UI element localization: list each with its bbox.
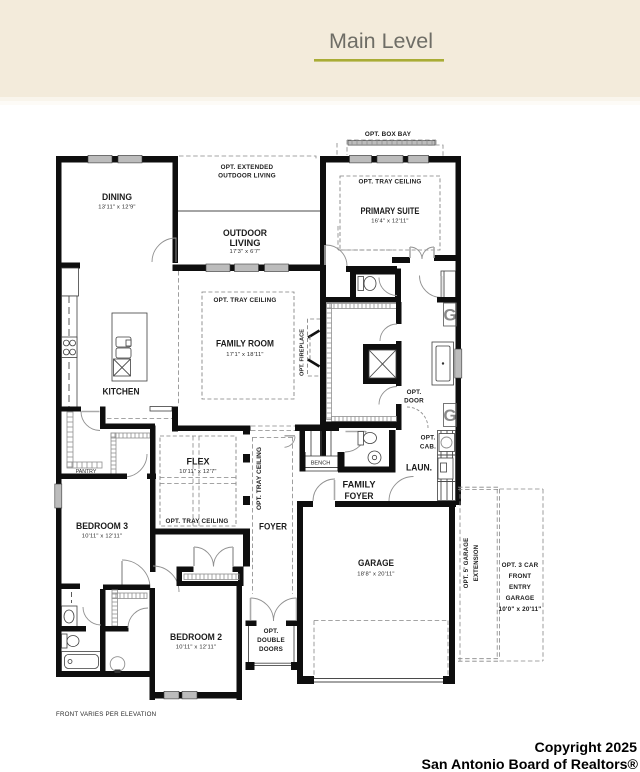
svg-text:OPT. TRAY CEILING: OPT. TRAY CEILING (359, 179, 422, 186)
svg-text:FAMILY ROOM: FAMILY ROOM (216, 339, 274, 350)
svg-text:EXTENSION: EXTENSION (474, 545, 480, 581)
svg-text:San Antonio Board of Realtors®: San Antonio Board of Realtors® (422, 757, 639, 772)
svg-text:OPT. FIREPLACE: OPT. FIREPLACE (300, 329, 306, 376)
svg-text:BEDROOM 2: BEDROOM 2 (170, 632, 222, 643)
svg-text:OPT. TRAY CEILING: OPT. TRAY CEILING (256, 447, 263, 510)
svg-text:OPT. BOX BAY: OPT. BOX BAY (365, 131, 412, 138)
svg-text:FAMILY: FAMILY (343, 480, 377, 491)
svg-text:OPT. 5' GARAGE: OPT. 5' GARAGE (464, 538, 470, 589)
svg-text:17'1" x 18'11": 17'1" x 18'11" (226, 352, 263, 358)
svg-text:OPT.: OPT. (264, 628, 279, 635)
svg-text:OPT. TRAY CEILING: OPT. TRAY CEILING (166, 518, 229, 525)
svg-text:LIVING: LIVING (230, 238, 261, 249)
svg-text:10'11" x 12'7": 10'11" x 12'7" (179, 469, 216, 475)
svg-text:10'11" x 12'11": 10'11" x 12'11" (176, 645, 216, 651)
svg-text:GARAGE: GARAGE (506, 595, 535, 602)
svg-text:10'11" x 12'11": 10'11" x 12'11" (82, 534, 122, 540)
svg-text:G: G (443, 406, 456, 425)
svg-text:OPT. 3 CAR: OPT. 3 CAR (502, 562, 539, 569)
svg-text:FRONT: FRONT (509, 573, 532, 580)
svg-text:DOUBLE: DOUBLE (257, 637, 285, 644)
svg-text:G: G (443, 306, 456, 325)
svg-text:OPT. TRAY CEILING: OPT. TRAY CEILING (214, 297, 277, 304)
svg-text:LAUN.: LAUN. (406, 463, 432, 474)
svg-text:ENTRY: ENTRY (509, 584, 532, 591)
svg-text:PRIMARY SUITE: PRIMARY SUITE (361, 206, 420, 217)
svg-text:17'3" x 6'7": 17'3" x 6'7" (230, 249, 261, 255)
svg-text:Main Level: Main Level (329, 29, 433, 53)
svg-text:OPT. EXTENDED: OPT. EXTENDED (221, 164, 274, 171)
svg-text:FOYER: FOYER (345, 491, 374, 502)
svg-text:OUTDOOR LIVING: OUTDOOR LIVING (218, 173, 276, 180)
svg-text:16'4" x 12'11": 16'4" x 12'11" (371, 219, 408, 225)
svg-text:BENCH: BENCH (311, 461, 331, 467)
svg-text:DINING: DINING (102, 192, 132, 203)
svg-text:DOORS: DOORS (259, 646, 283, 653)
svg-text:OPT.: OPT. (421, 435, 436, 442)
svg-text:GARAGE: GARAGE (358, 558, 395, 569)
svg-text:FRONT VARIES PER ELEVATION: FRONT VARIES PER ELEVATION (56, 711, 156, 718)
svg-text:OPT.: OPT. (407, 389, 422, 396)
svg-text:10'0" x 20'11": 10'0" x 20'11" (499, 606, 542, 613)
svg-text:Copyright 2025: Copyright 2025 (535, 740, 638, 756)
svg-text:18'8" x 20'11": 18'8" x 20'11" (357, 572, 394, 578)
svg-text:FLEX: FLEX (187, 457, 211, 468)
svg-text:CAB.: CAB. (420, 444, 436, 451)
svg-text:FOYER: FOYER (259, 522, 287, 533)
svg-text:DOOR: DOOR (404, 398, 424, 405)
svg-text:KITCHEN: KITCHEN (103, 387, 140, 398)
svg-text:BEDROOM 3: BEDROOM 3 (76, 521, 128, 532)
svg-text:13'11" x 12'9": 13'11" x 12'9" (98, 205, 135, 211)
